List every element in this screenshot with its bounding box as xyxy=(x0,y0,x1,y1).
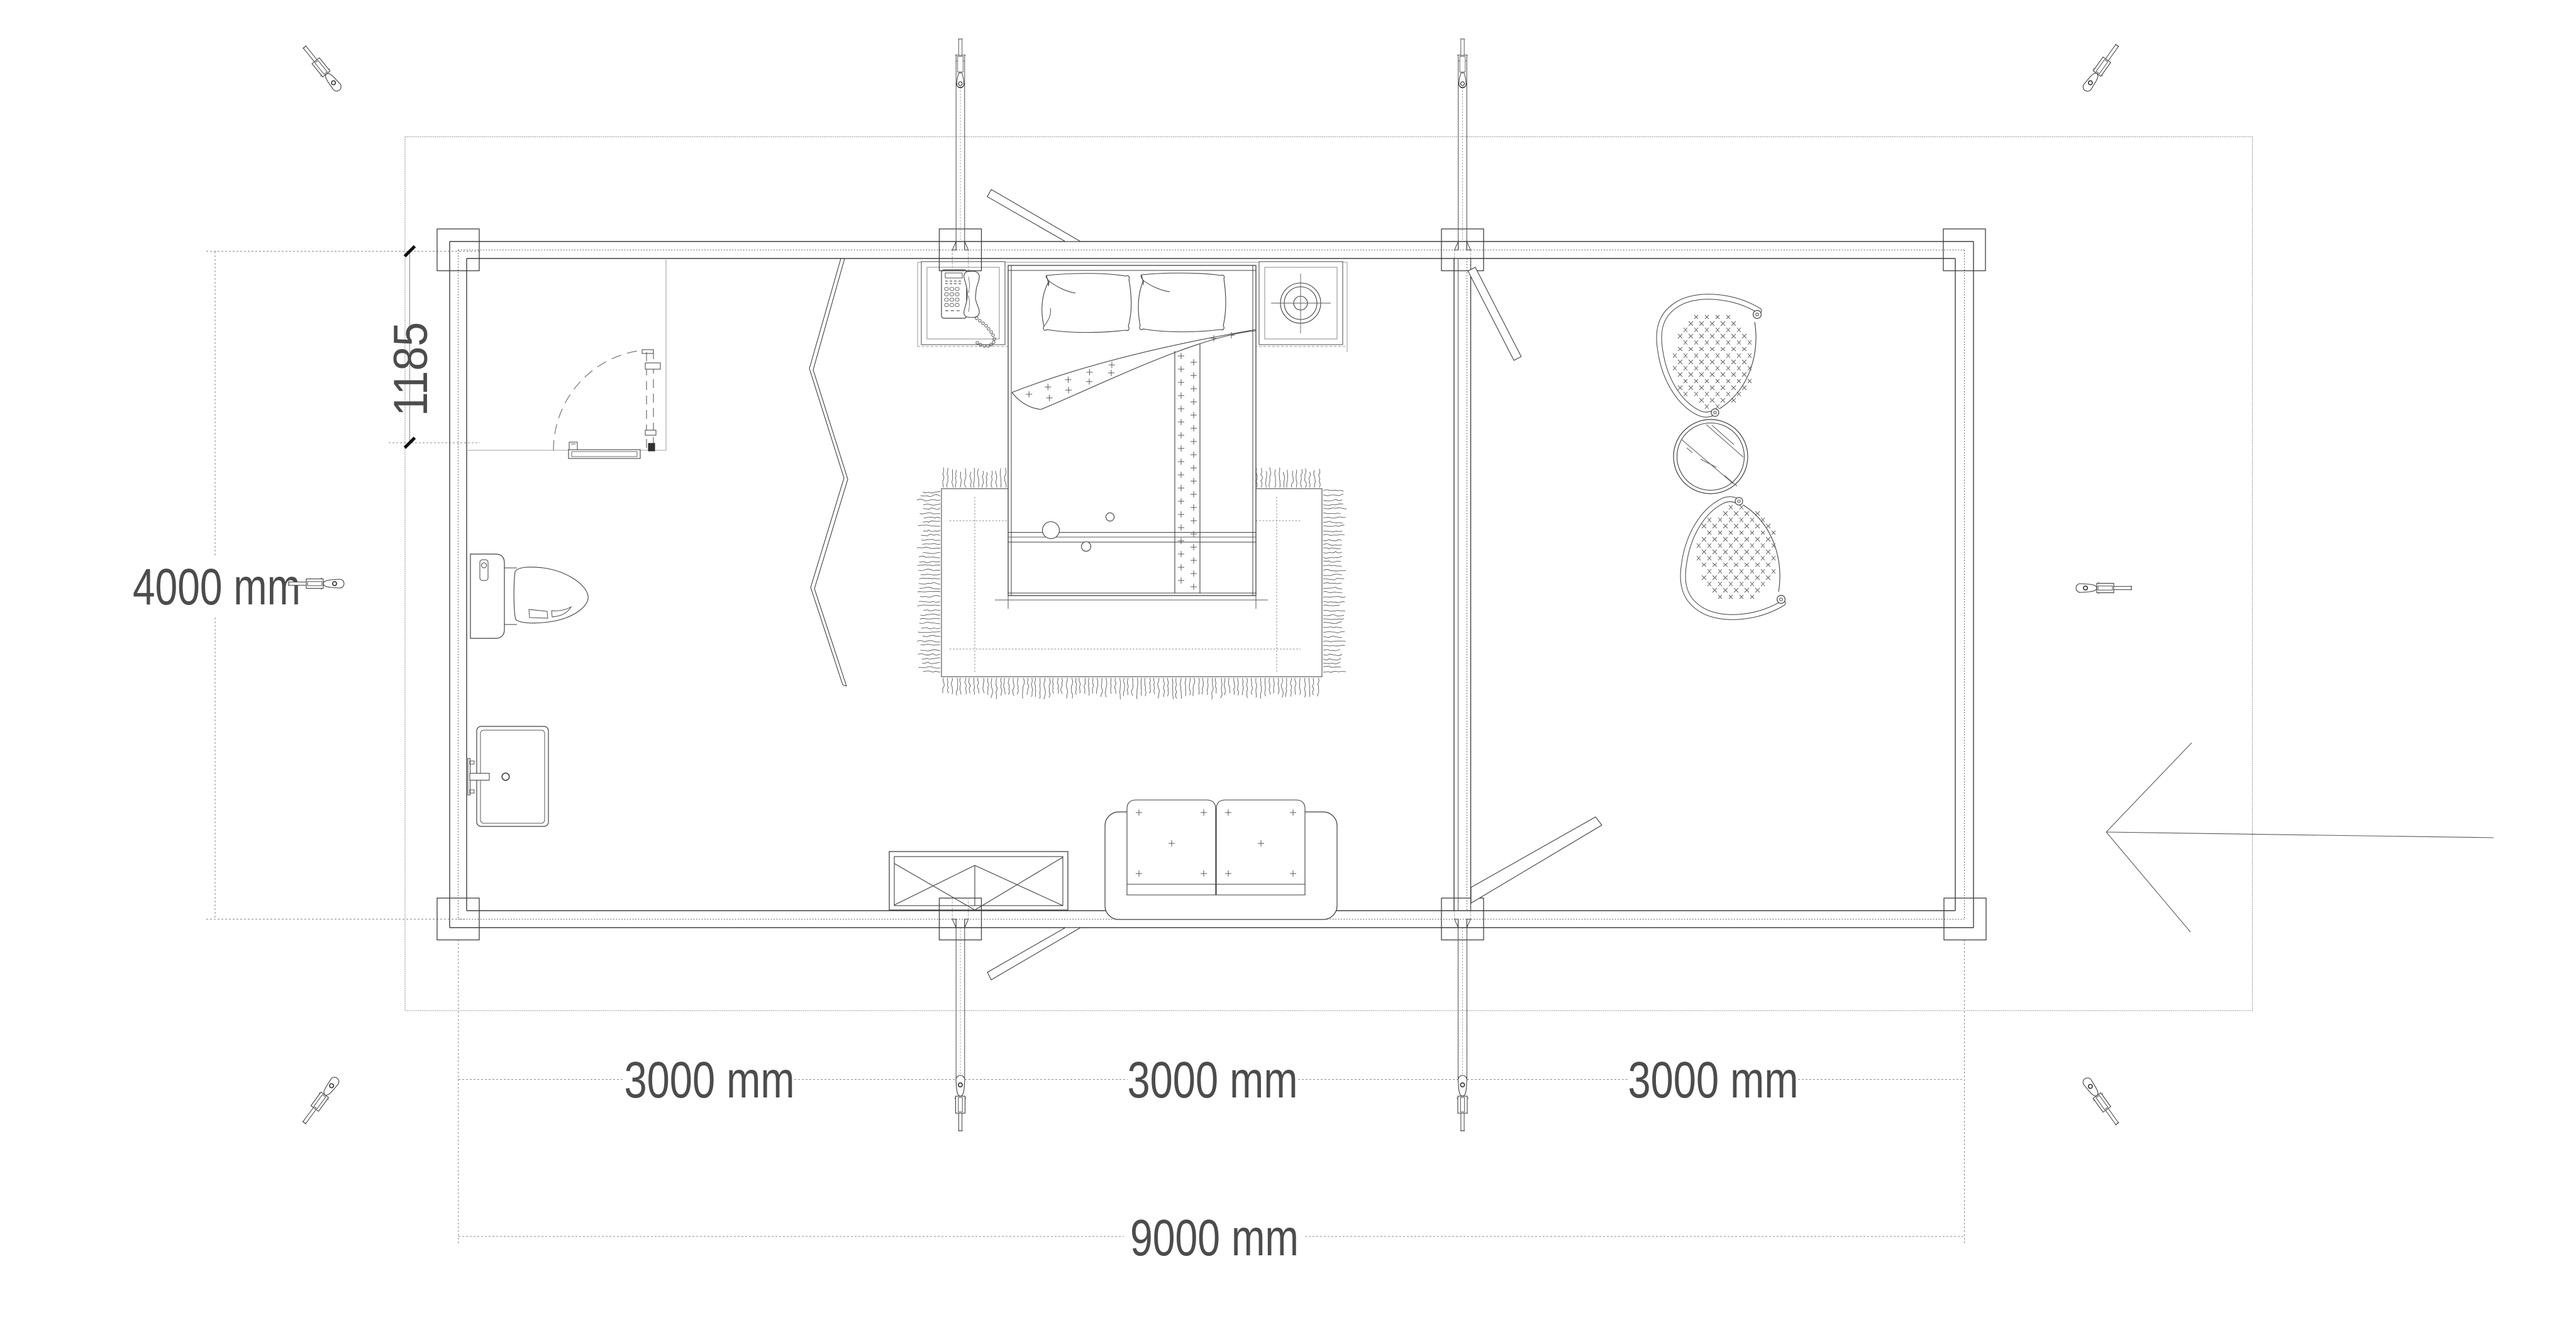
svg-text:3000 mm: 3000 mm xyxy=(1628,1052,1799,1109)
svg-text:1185: 1185 xyxy=(384,322,438,416)
svg-text:3000 mm: 3000 mm xyxy=(1128,1052,1298,1109)
svg-text:4000 mm: 4000 mm xyxy=(133,558,301,616)
svg-text:3000 mm: 3000 mm xyxy=(625,1052,795,1109)
svg-text:9000 mm: 9000 mm xyxy=(1130,1209,1299,1267)
